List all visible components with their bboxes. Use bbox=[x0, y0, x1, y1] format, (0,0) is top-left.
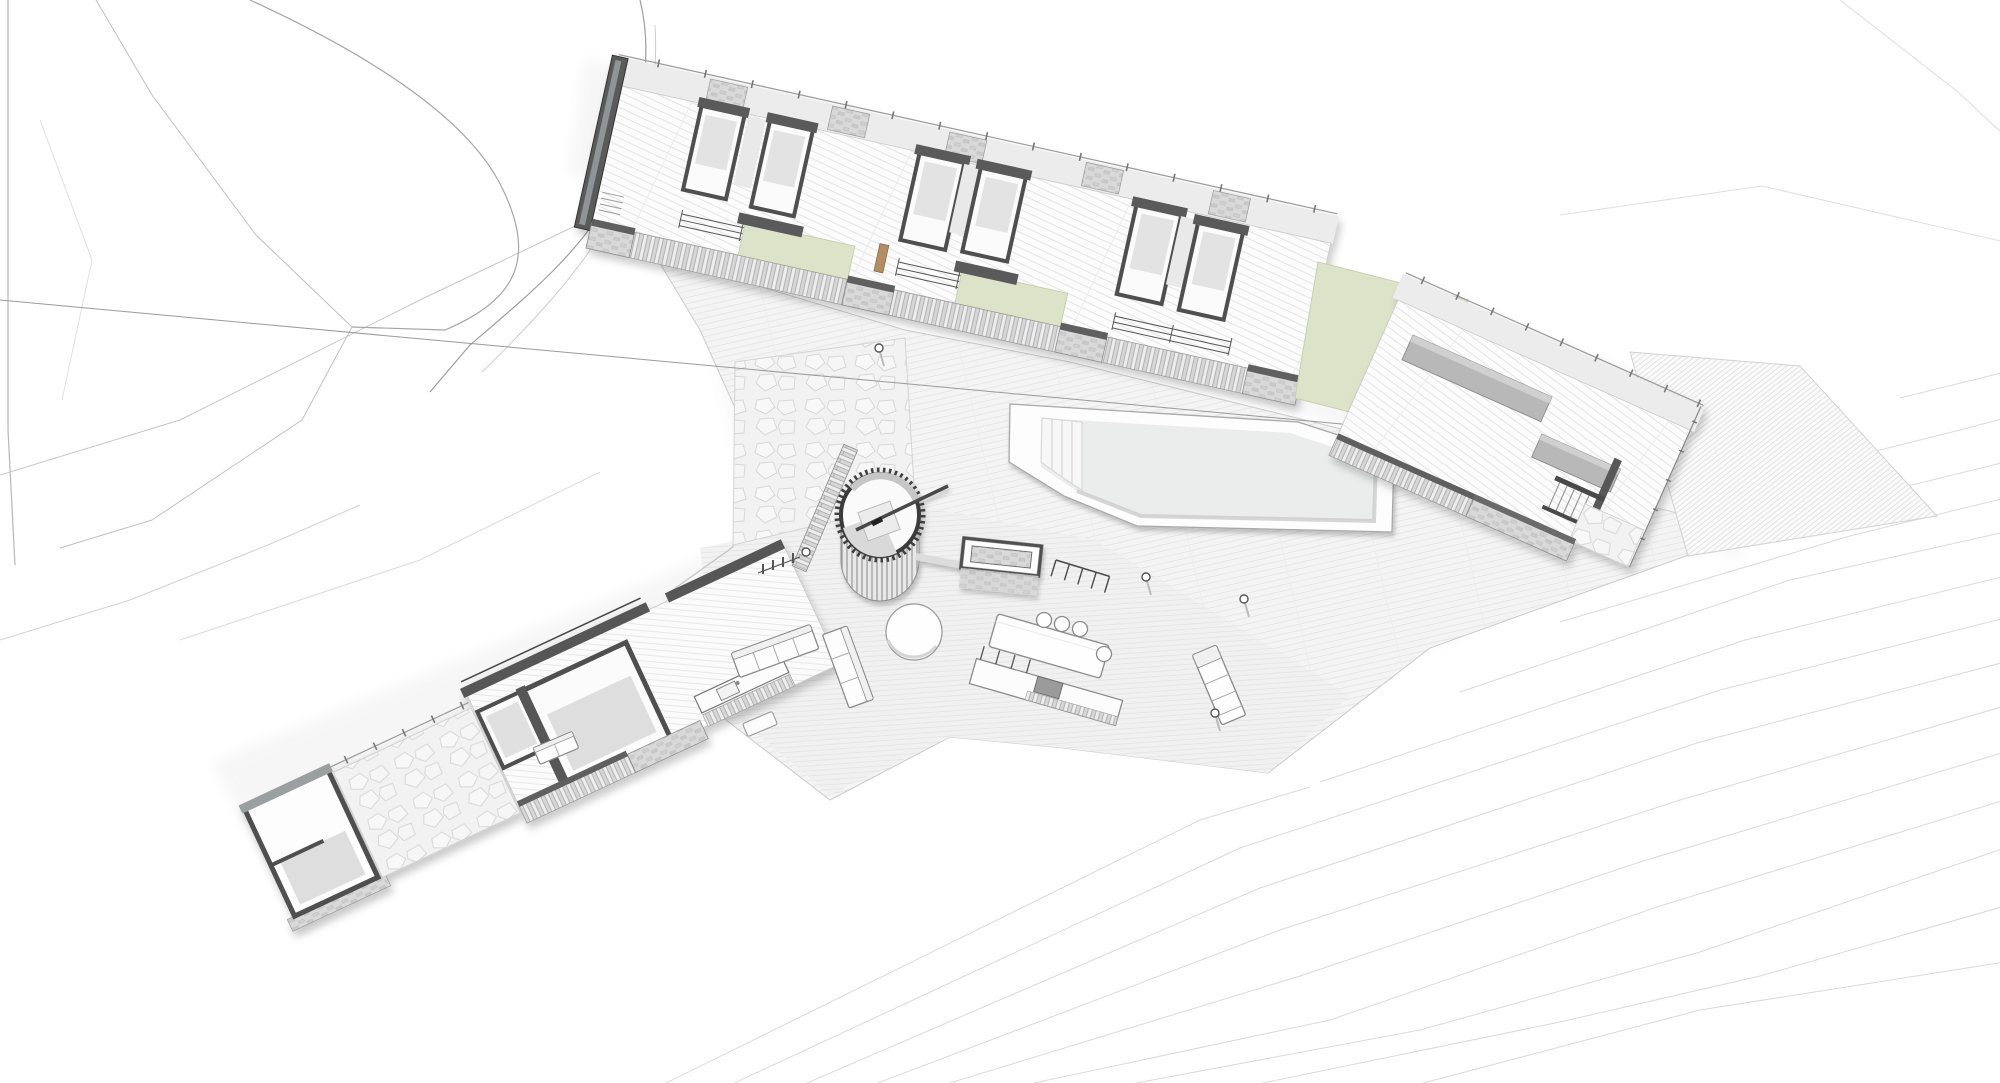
architectural-site-plan bbox=[0, 0, 2000, 1083]
coffee-table bbox=[886, 604, 942, 660]
outdoor-fireplace bbox=[959, 538, 1042, 596]
